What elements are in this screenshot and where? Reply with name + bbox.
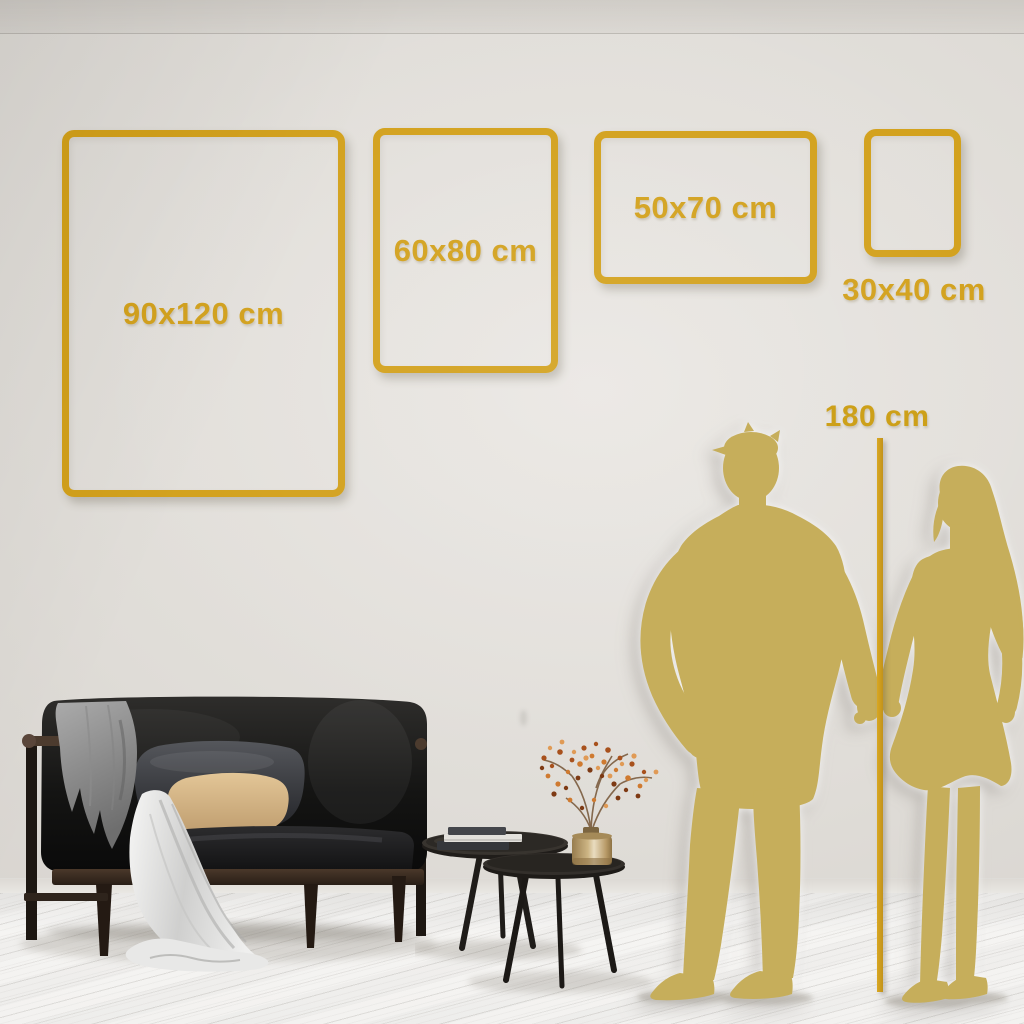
- man-left-leg: [683, 788, 741, 980]
- ceiling-line: [0, 0, 1024, 34]
- couple-silhouette: [630, 395, 1024, 1024]
- woman-left-hand: [883, 699, 901, 717]
- man-left-hand: [688, 733, 720, 759]
- wall-smudge: [520, 710, 527, 726]
- woman-left-leg: [920, 786, 950, 986]
- size-label-30x40: 30x40 cm: [838, 272, 990, 308]
- brass-vase: [572, 827, 612, 865]
- woman-right-hand: [997, 701, 1015, 723]
- man-silhouette: [650, 422, 881, 1000]
- size-frame-50x70: 50x70 cm: [594, 131, 817, 284]
- beige-cushion: [168, 773, 289, 835]
- dark-cushion-highlight: [150, 751, 274, 773]
- sofa: [8, 688, 448, 978]
- woman-silhouette: [883, 466, 1023, 1003]
- size-label-90x120: 90x120 cm: [123, 296, 284, 332]
- woman-right-leg: [956, 786, 980, 986]
- height-marker-line: [877, 438, 883, 992]
- poster-size-guide-scene: 90x120 cm 60x80 cm 50x70 cm 30x40 cm 180…: [0, 0, 1024, 1024]
- front-rail: [52, 869, 424, 885]
- woman-left-foot: [902, 979, 949, 1003]
- table-b-legs: [506, 875, 614, 986]
- table-a-shadow: [415, 940, 582, 960]
- man-right-leg: [753, 787, 801, 980]
- sofa-sheen-right: [308, 700, 412, 824]
- man-hair: [724, 432, 778, 464]
- size-frame-60x80: 60x80 cm: [373, 128, 558, 373]
- size-label-60x80: 60x80 cm: [394, 233, 538, 269]
- size-label-50x70: 50x70 cm: [634, 190, 778, 226]
- man-right-foot: [730, 971, 793, 999]
- size-frame-30x40: [864, 129, 961, 257]
- height-marker-label: 180 cm: [800, 400, 954, 434]
- man-left-foot: [650, 973, 714, 1000]
- woman-right-foot: [942, 975, 988, 999]
- size-frame-90x120: 90x120 cm: [62, 130, 345, 497]
